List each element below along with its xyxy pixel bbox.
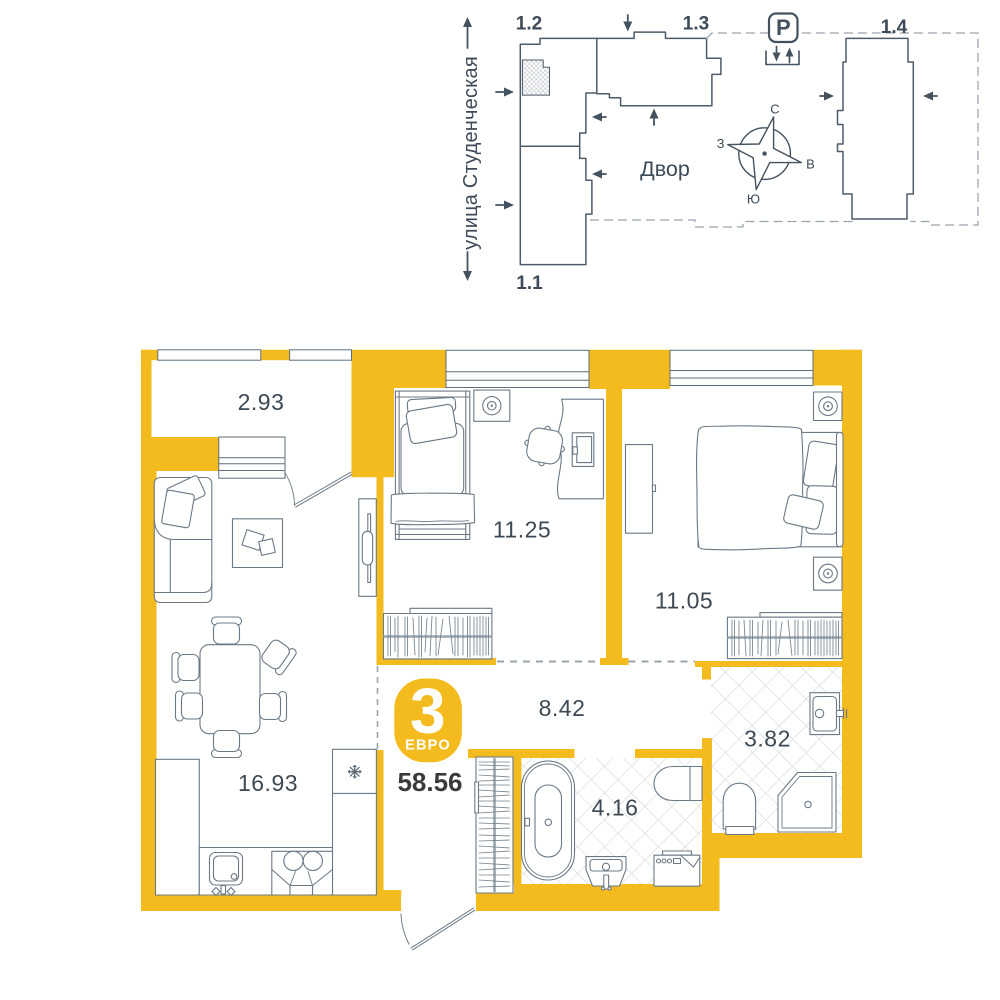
svg-text:Ю: Ю — [747, 192, 760, 207]
svg-text:улица Студенческая: улица Студенческая — [460, 56, 482, 250]
svg-text:Двор: Двор — [640, 157, 690, 181]
svg-text:58.56: 58.56 — [397, 767, 462, 797]
svg-text:4.16: 4.16 — [592, 795, 639, 821]
svg-text:1.4: 1.4 — [881, 17, 908, 38]
svg-text:1.3: 1.3 — [683, 14, 709, 35]
svg-text:1.1: 1.1 — [516, 273, 543, 294]
svg-text:8.42: 8.42 — [539, 695, 586, 721]
svg-text:3: 3 — [410, 675, 446, 747]
svg-text:1.2: 1.2 — [516, 14, 542, 35]
svg-text:11.25: 11.25 — [493, 517, 551, 543]
svg-text:11.05: 11.05 — [655, 588, 713, 614]
svg-text:В: В — [806, 156, 815, 171]
svg-text:P: P — [776, 15, 791, 40]
svg-text:С: С — [770, 102, 779, 117]
svg-text:ЕВРО: ЕВРО — [405, 738, 451, 754]
svg-text:3.82: 3.82 — [744, 726, 791, 752]
svg-text:З: З — [717, 136, 725, 151]
svg-text:2.93: 2.93 — [238, 389, 285, 415]
svg-text:16.93: 16.93 — [238, 770, 298, 796]
